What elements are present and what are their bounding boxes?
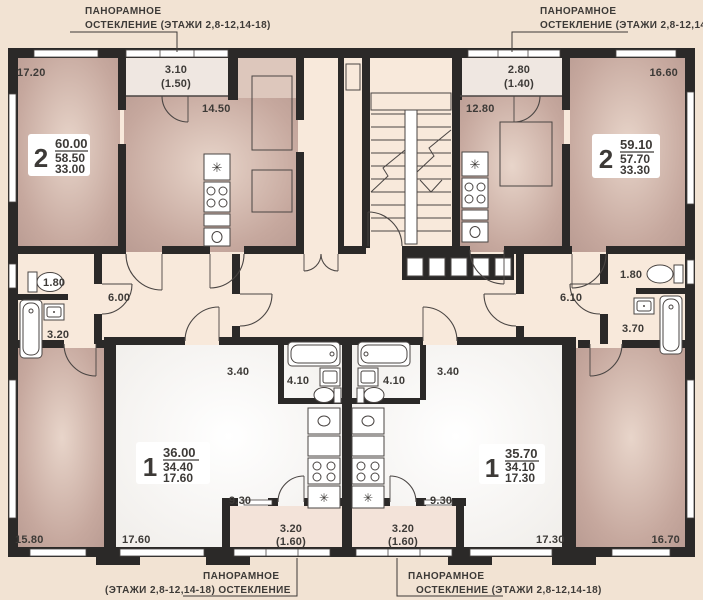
bathtub-icon	[288, 342, 340, 366]
annotation-line: ОСТЕКЛЕНИЕ (ЭТАЖИ 2,8-12,14-18)	[416, 585, 602, 596]
bathtub-icon	[660, 296, 682, 354]
annotation-top-left: ПАНОРАМНОЕ ОСТЕКЛЕНИЕ (ЭТАЖИ 2,8-12,14-1…	[70, 6, 271, 52]
fridge-icon: ✳	[470, 157, 481, 172]
window-bottom-3	[470, 549, 552, 556]
window-right-3	[687, 380, 694, 518]
sink-icon	[358, 368, 378, 386]
apartment-card-top-left: 2 60.00 58.50 33.00	[28, 134, 90, 176]
bathtub-icon	[20, 300, 42, 358]
window-left-3	[9, 380, 16, 518]
apartment-area-total: 60.00	[55, 136, 88, 151]
stove-icon	[308, 458, 340, 484]
dim-label: 14.50	[202, 103, 231, 115]
dim-label: 15.80	[15, 534, 44, 546]
window-top-1	[34, 50, 98, 57]
apartment-card-bottom-left: 1 36.00 34.40 17.60	[136, 442, 210, 485]
room-bottom-right-corner	[576, 348, 686, 548]
apartment-rooms-count: 2	[34, 143, 48, 173]
apartment-area-total: 59.10	[620, 137, 653, 152]
stair-stringer	[405, 110, 417, 244]
kitchen-sink-icon	[308, 408, 340, 434]
annotation-line: ОСТЕКЛЕНИЕ (ЭТАЖИ 2,8-12,14-18)	[85, 20, 271, 31]
dim-label: 4.10	[383, 375, 405, 387]
sink-icon	[320, 368, 340, 386]
dim-label: (1.60)	[276, 536, 306, 548]
dim-label: 6.00	[108, 292, 130, 304]
toilet-icon	[314, 388, 341, 404]
kitchen-units: ✳	[462, 152, 488, 242]
fridge-icon: ✳	[363, 491, 373, 505]
dim-label: (1.60)	[388, 536, 418, 548]
room-bottom-left-corner	[18, 348, 106, 548]
annotation-line: ОСТЕКЛЕНИЕ (ЭТАЖИ 2,8-12,14-18)	[540, 20, 703, 31]
kitchen-units: ✳	[352, 408, 384, 508]
window-bottom-2	[120, 549, 204, 556]
dim-label: 3.20	[47, 329, 69, 341]
annotation-line: (ЭТАЖИ 2,8-12,14-18) ОСТЕКЛЕНИЕ	[105, 585, 291, 596]
fridge-icon: ✳	[319, 491, 329, 505]
dim-label: 17.60	[122, 534, 151, 546]
window-bottom-1	[30, 549, 86, 556]
dim-label: 17.30	[536, 534, 565, 546]
annotation-line: ПАНОРАМНОЕ	[540, 6, 616, 17]
kitchen-units: ✳	[204, 154, 230, 246]
sink-icon	[634, 298, 654, 314]
apartment-area-total: 35.70	[505, 446, 538, 461]
apartment-area-rooms: 17.60	[163, 471, 193, 485]
window-left-2	[9, 264, 16, 288]
toilet-icon	[357, 388, 384, 404]
toilet-icon	[647, 265, 683, 283]
floor-plan-page: ✳ ✳ ✳	[0, 0, 703, 600]
apartment-rooms-count: 1	[143, 452, 157, 482]
dim-label: 9.30	[229, 495, 251, 507]
dim-label: (1.40)	[504, 78, 534, 90]
dim-label: 6.10	[560, 292, 582, 304]
apartment-card-top-right: 2 59.10 57.70 33.30	[592, 134, 660, 178]
annotation-line: ПАНОРАМНОЕ	[85, 6, 161, 17]
window-bottom-4	[612, 549, 670, 556]
dim-label: 1.80	[43, 277, 65, 289]
dim-label: 3.10	[165, 64, 187, 76]
window-right-1	[687, 92, 694, 204]
dim-label: (1.50)	[161, 78, 191, 90]
dim-label: 3.40	[227, 366, 249, 378]
annotation-top-right: ПАНОРАМНОЕ ОСТЕКЛЕНИЕ (ЭТАЖИ 2,8-12,14-1…	[512, 6, 703, 52]
floor-plan-drawing: ✳ ✳ ✳	[0, 0, 703, 600]
annotation-line: ПАНОРАМНОЕ	[203, 571, 279, 582]
apartment-area-rooms: 33.00	[55, 162, 85, 176]
balcony-glazing-bottom-left	[234, 549, 330, 556]
bathtub-icon	[358, 342, 410, 366]
dim-label: 4.10	[287, 375, 309, 387]
kitchen-sink-icon	[204, 228, 230, 246]
apartment-area-rooms: 17.30	[505, 471, 535, 485]
stove-icon	[204, 182, 230, 212]
dim-label: 17.20	[17, 67, 46, 79]
dim-label: 3.20	[392, 523, 414, 535]
annotation-line: ПАНОРАМНОЕ	[408, 571, 484, 582]
dim-label: 1.80	[620, 269, 642, 281]
dim-label: 12.80	[466, 103, 495, 115]
window-left-1	[9, 94, 16, 202]
apartment-rooms-count: 1	[485, 453, 499, 483]
kitchen-units: ✳	[308, 408, 340, 508]
apartment-card-bottom-right: 1 35.70 34.10 17.30	[479, 444, 545, 485]
dim-label: 16.60	[649, 67, 678, 79]
window-top-2	[616, 50, 676, 57]
apartment-area-total: 36.00	[163, 445, 196, 460]
loggia-glazing-top-right	[468, 50, 560, 57]
balcony-glazing-bottom-right	[356, 549, 452, 556]
kitchen-top-left-upper	[238, 58, 298, 98]
dim-label: 3.20	[280, 523, 302, 535]
dim-label: 16.70	[651, 534, 680, 546]
fridge-icon: ✳	[212, 160, 223, 175]
dim-label: 2.80	[508, 64, 530, 76]
kitchen-sink-icon	[352, 408, 384, 434]
apartment-rooms-count: 2	[599, 144, 613, 174]
window-right-2	[687, 260, 694, 284]
apartment-area-rooms: 33.30	[620, 163, 650, 177]
dim-label: 3.70	[622, 323, 644, 335]
sink-icon	[44, 304, 64, 320]
dim-label: 9.30	[430, 495, 452, 507]
stove-icon	[352, 458, 384, 484]
stove-icon	[462, 178, 488, 208]
kitchen-sink-icon	[462, 222, 488, 242]
dim-label: 3.40	[437, 366, 459, 378]
